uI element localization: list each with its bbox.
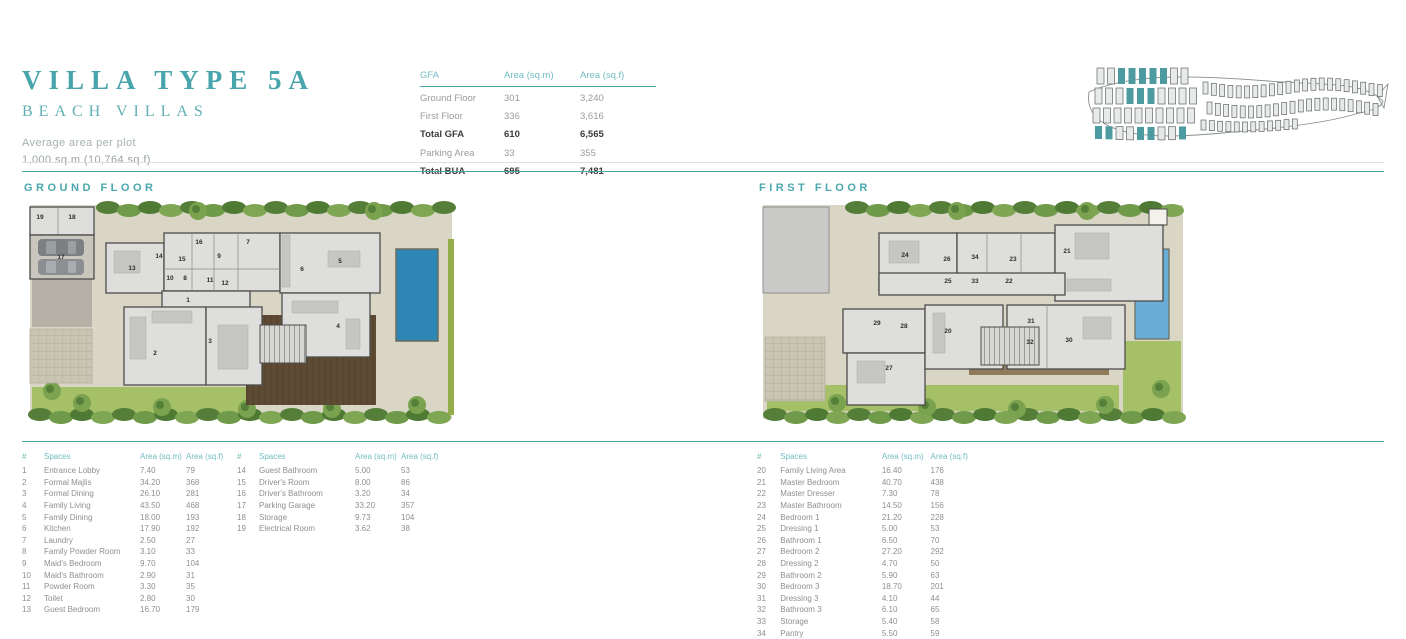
masterplan-plot	[1307, 99, 1312, 111]
masterplan-plot	[1369, 83, 1374, 95]
masterplan-plot	[1179, 88, 1186, 104]
table-row: 11Powder Room3.3035	[22, 581, 228, 593]
room-number: 7	[246, 239, 250, 246]
table-row: 28Dressing 24.7050	[757, 558, 975, 570]
masterplan-plot	[1093, 108, 1100, 123]
room-number: 15	[178, 256, 186, 263]
room-number: 25	[944, 278, 952, 285]
masterplan-plot	[1290, 101, 1295, 113]
masterplan-plot	[1340, 99, 1345, 111]
masterplan-plot	[1106, 126, 1113, 139]
masterplan-plot	[1361, 82, 1366, 94]
first-floor-spaces-table: #SpacesArea (sq.m)Area (sq.f)20Family Li…	[757, 452, 975, 639]
room-number: 2	[153, 350, 157, 357]
ground-floor-label: GROUND FLOOR	[24, 182, 156, 194]
ground-floor-plan: 19181713141516971081112651234	[22, 199, 458, 436]
title-block: VILLA TYPE 5A BEACH VILLAS Average area …	[22, 66, 315, 166]
masterplan-plot	[1273, 104, 1278, 116]
dining-table-icon	[218, 325, 248, 369]
masterplan-plot	[1156, 108, 1163, 123]
masterplan-plot	[1106, 88, 1113, 104]
paved-patio	[30, 329, 92, 383]
first-floor-label: FIRST FLOOR	[759, 182, 871, 194]
staircase	[981, 327, 1039, 365]
spaces-table: #SpacesArea (sq.m)Area (sq.f)14Guest Bat…	[237, 452, 443, 535]
masterplan-plot	[1261, 85, 1266, 97]
masterplan-plot	[1224, 104, 1229, 116]
bed-icon	[857, 361, 885, 383]
bed-icon	[114, 251, 140, 273]
masterplan-plot	[1137, 127, 1144, 140]
room-number: 19	[36, 214, 44, 221]
table-row: 33Storage5.4058	[757, 616, 975, 628]
gfa-table: GFAArea (sq.m)Area (sq.f)Ground Floor301…	[420, 70, 656, 180]
room-number: 27	[885, 365, 893, 372]
masterplan-plot	[1249, 106, 1254, 118]
masterplan-plot	[1344, 80, 1349, 92]
masterplan-plot	[1278, 83, 1283, 95]
masterplan-plot	[1104, 108, 1111, 123]
masterplan-plot	[1146, 108, 1153, 123]
room-number: 20	[944, 328, 952, 335]
masterplan-plot	[1319, 78, 1324, 90]
masterplan-plot	[1116, 127, 1123, 140]
column-header: #	[757, 452, 780, 465]
masterplan-plot	[1253, 86, 1258, 98]
room-number: 30	[1065, 337, 1073, 344]
column-header: Area (sq.m)	[504, 70, 580, 87]
masterplan-plot	[1265, 105, 1270, 117]
masterplan-plot	[1169, 88, 1176, 104]
masterplan-plot	[1148, 88, 1155, 104]
dressing-bath-2	[843, 309, 925, 353]
masterplan-plot	[1171, 68, 1178, 84]
masterplan-plot	[1177, 108, 1184, 123]
spaces-table: #SpacesArea (sq.m)Area (sq.f)1Entrance L…	[22, 452, 228, 616]
room-number: 31	[1027, 318, 1035, 325]
masterplan-plot	[1215, 103, 1220, 115]
table-row: 12Toilet2.8030	[22, 593, 228, 605]
table-row: Total GFA6106,565	[420, 126, 656, 144]
masterplan-map	[1083, 58, 1390, 150]
room-number: 11	[207, 277, 214, 284]
room-number: 23	[1009, 256, 1017, 263]
table-row: 32Bathroom 36.1065	[757, 604, 975, 616]
masterplan-plot	[1137, 88, 1144, 104]
table-row: 1Entrance Lobby7.4079	[22, 465, 228, 477]
bed-icon	[1083, 317, 1111, 339]
room-number: 1	[186, 297, 190, 304]
table-row: 25Dressing 15.0053	[757, 523, 975, 535]
masterplan-plot	[1259, 121, 1264, 131]
masterplan-plot	[1226, 122, 1231, 132]
side-lawn-strip	[448, 239, 454, 415]
table-row: First Floor3363,616	[420, 108, 656, 126]
room-number: 16	[195, 239, 203, 246]
masterplan-plot	[1228, 85, 1233, 97]
masterplan-plot	[1127, 88, 1134, 104]
room-number: 5	[338, 258, 342, 265]
brochure-page: { "colors":{ "accent":"#4aa7ad","title":…	[0, 0, 1406, 633]
masterplan-plot	[1167, 108, 1174, 123]
masterplan-plot	[1348, 100, 1353, 112]
masterplan-plot	[1190, 88, 1197, 104]
car-icon	[38, 259, 84, 275]
table-row: 3Formal Dining26.10281	[22, 488, 228, 500]
staircase	[260, 325, 306, 363]
masterplan-plot	[1207, 102, 1212, 114]
masterplan-plot	[1257, 106, 1262, 118]
divider-teal-bottom	[22, 441, 1384, 442]
table-row: 26Bathroom 16.5070	[757, 535, 975, 547]
roof-feature	[1149, 209, 1167, 225]
bed-icon	[1075, 233, 1109, 259]
masterplan-plot	[1114, 108, 1121, 123]
seating-icon	[1067, 279, 1111, 291]
room-number: 14	[155, 253, 163, 260]
dining-table-icon	[328, 251, 360, 267]
masterplan-plot	[1201, 120, 1206, 130]
spaces-table: #SpacesArea (sq.m)Area (sq.f)20Family Li…	[757, 452, 975, 639]
column-header: GFA	[420, 70, 504, 87]
column-header: Area (sq.m)	[355, 452, 401, 465]
table-row: 16Driver's Bathroom3.2034	[237, 488, 443, 500]
masterplan-plot	[1294, 80, 1299, 92]
masterplan-plot	[1209, 121, 1214, 131]
driveway	[32, 279, 92, 327]
table-row: 23Master Bathroom14.50156	[757, 500, 975, 512]
masterplan-plot	[1303, 79, 1308, 91]
masterplan-plot	[1323, 98, 1328, 110]
table-row: 30Bedroom 318.70201	[757, 581, 975, 593]
masterplan-plot	[1129, 68, 1136, 84]
service-rooms	[30, 207, 94, 235]
room-number: 33	[971, 278, 979, 285]
masterplan-plot	[1181, 68, 1188, 84]
table-row: 20Family Living Area16.40176	[757, 465, 975, 477]
table-row: 19Electrical Room3.6238	[237, 523, 443, 535]
masterplan-plot	[1373, 103, 1378, 115]
room-number: 26	[943, 256, 951, 263]
table-row: 29Bathroom 25.9063	[757, 569, 975, 581]
room-number: 13	[128, 265, 136, 272]
masterplan-plot	[1311, 78, 1316, 90]
masterplan-plot	[1188, 108, 1195, 123]
sofa-icon	[152, 311, 192, 323]
column-header: Area (sq.f)	[931, 452, 975, 465]
table-row: Parking Area33355	[420, 144, 656, 162]
table-row: 10Maid's Bathroom2.9031	[22, 569, 228, 581]
masterplan-plot	[1282, 103, 1287, 115]
masterplan-plot	[1125, 108, 1132, 123]
room-number: 21	[1063, 248, 1071, 255]
column-header: #	[237, 452, 259, 465]
table-row: 14Guest Bathroom5.0053	[237, 465, 443, 477]
table-row: 24Bedroom 121.20228	[757, 511, 975, 523]
masterplan-plot	[1365, 102, 1370, 114]
page-title: VILLA TYPE 5A	[22, 66, 315, 96]
masterplan-plot	[1377, 85, 1382, 97]
masterplan-plot	[1135, 108, 1142, 123]
masterplan-plot	[1243, 122, 1248, 132]
masterplan-plot	[1269, 84, 1274, 96]
table-row: 13Guest Bedroom16.70179	[22, 604, 228, 616]
table-row: 7Laundry2.5027	[22, 535, 228, 547]
masterplan-plot	[1236, 86, 1241, 98]
masterplan-plot	[1095, 88, 1102, 104]
masterplan-plot	[1108, 68, 1115, 84]
average-area-label: Average area per plot	[22, 137, 315, 149]
masterplan-plot	[1298, 100, 1303, 112]
masterplan-plot	[1286, 81, 1291, 93]
divider-gray	[22, 162, 1384, 163]
room-number: 28	[900, 323, 908, 330]
masterplan-plot	[1127, 127, 1134, 140]
masterplan-plot	[1234, 122, 1239, 132]
table-row: 22Master Dresser7.3078	[757, 488, 975, 500]
table-row: 5Family Dining18.00193	[22, 511, 228, 523]
masterplan-plot	[1116, 88, 1123, 104]
column-header: Spaces	[780, 452, 882, 465]
ground-floor-spaces-table-1: #SpacesArea (sq.m)Area (sq.f)1Entrance L…	[22, 452, 228, 616]
room-number: 18	[68, 214, 76, 221]
column-header: #	[22, 452, 44, 465]
column-header: Area (sq.f)	[580, 70, 656, 87]
masterplan-plot	[1218, 121, 1223, 131]
room-number: 29	[873, 320, 881, 327]
masterplan-plot	[1148, 127, 1155, 140]
masterplan-plot	[1158, 127, 1165, 140]
garage-roof	[763, 207, 829, 293]
masterplan-plot	[1245, 86, 1250, 98]
table-row: 8Family Powder Room3.1033	[22, 546, 228, 558]
gfa-summary: GFAArea (sq.m)Area (sq.f)Ground Floor301…	[420, 70, 656, 180]
table-row: 21Master Bedroom40.70438	[757, 477, 975, 489]
table-row: 31Dressing 34.1044	[757, 593, 975, 605]
room-number: 32	[1026, 339, 1034, 346]
masterplan-plot	[1232, 105, 1237, 117]
room-number: 8	[183, 275, 187, 282]
masterplan-plot	[1251, 122, 1256, 132]
table-row: 9Maid's Bedroom9.70104	[22, 558, 228, 570]
table-row: 18Storage9.73104	[237, 511, 443, 523]
room-number: 17	[57, 254, 65, 261]
table-row: 17Parking Garage33.20357	[237, 500, 443, 512]
first-floor-plan: 242634232125332229282027313230	[757, 199, 1193, 436]
sofa-icon	[346, 319, 360, 349]
masterplan-plot	[1095, 126, 1102, 139]
masterplan-plot	[1336, 79, 1341, 91]
table-row: 4Family Living43.50468	[22, 500, 228, 512]
masterplan-plot	[1328, 78, 1333, 90]
masterplan-plot	[1292, 119, 1297, 129]
masterplan-plot	[1267, 121, 1272, 131]
page-subtitle: BEACH VILLAS	[22, 103, 315, 121]
table-row: 34Pantry5.5059	[757, 627, 975, 639]
room-number: 34	[971, 254, 979, 261]
masterplan-plot	[1356, 101, 1361, 113]
table-row: 27Bedroom 227.20292	[757, 546, 975, 558]
room-number: 12	[221, 280, 229, 287]
column-header: Area (sq.f)	[186, 452, 228, 465]
column-header: Area (sq.m)	[140, 452, 186, 465]
table-row: 6Kitchen17.90192	[22, 523, 228, 535]
column-header: Area (sq.m)	[882, 452, 931, 465]
table-row: 2Formal Majlis34.20368	[22, 477, 228, 489]
masterplan-plot	[1220, 84, 1225, 96]
ground-floor-spaces-table-2: #SpacesArea (sq.m)Area (sq.f)14Guest Bat…	[237, 452, 443, 535]
column-header: Spaces	[259, 452, 355, 465]
room-number: 24	[901, 252, 909, 259]
masterplan-plot	[1118, 68, 1125, 84]
masterplan-plot	[1352, 81, 1357, 93]
masterplan-plot	[1158, 88, 1165, 104]
table-row: Ground Floor3013,240	[420, 87, 656, 108]
table-row: 15Driver's Room8.0086	[237, 477, 443, 489]
sofa-icon	[933, 313, 945, 353]
room-number: 10	[166, 275, 174, 282]
room-number: 3	[208, 338, 212, 345]
masterplan-plot	[1160, 68, 1167, 84]
masterplan-plot	[1179, 126, 1186, 139]
room-number: 6	[300, 266, 304, 273]
masterplan-plot	[1332, 98, 1337, 110]
kitchen-counter-icon	[282, 235, 290, 287]
sofa-icon	[130, 317, 146, 359]
pool	[396, 249, 438, 341]
masterplan-plot	[1315, 98, 1320, 110]
masterplan-plot	[1139, 68, 1146, 84]
divider-teal-top	[22, 171, 1384, 172]
masterplan-plot	[1240, 106, 1245, 118]
column-header: Area (sq.f)	[401, 452, 443, 465]
masterplan-plot	[1097, 68, 1104, 84]
masterplan-plot	[1276, 120, 1281, 130]
masterplan-plot	[1150, 68, 1157, 84]
room-number: 9	[217, 253, 221, 260]
masterplan-plot	[1203, 82, 1208, 94]
masterplan-plot	[1169, 127, 1176, 140]
paved-patio	[765, 337, 825, 401]
average-area-value: 1,000 sq.m (10,764 sq.f)	[22, 154, 315, 166]
column-header: Spaces	[44, 452, 140, 465]
masterplan-plot	[1211, 83, 1216, 95]
masterplan-plot	[1284, 120, 1289, 130]
room-number: 22	[1005, 278, 1013, 285]
sofa-icon	[292, 301, 338, 313]
pool-lawn	[1123, 341, 1181, 413]
room-number: 4	[336, 323, 340, 330]
